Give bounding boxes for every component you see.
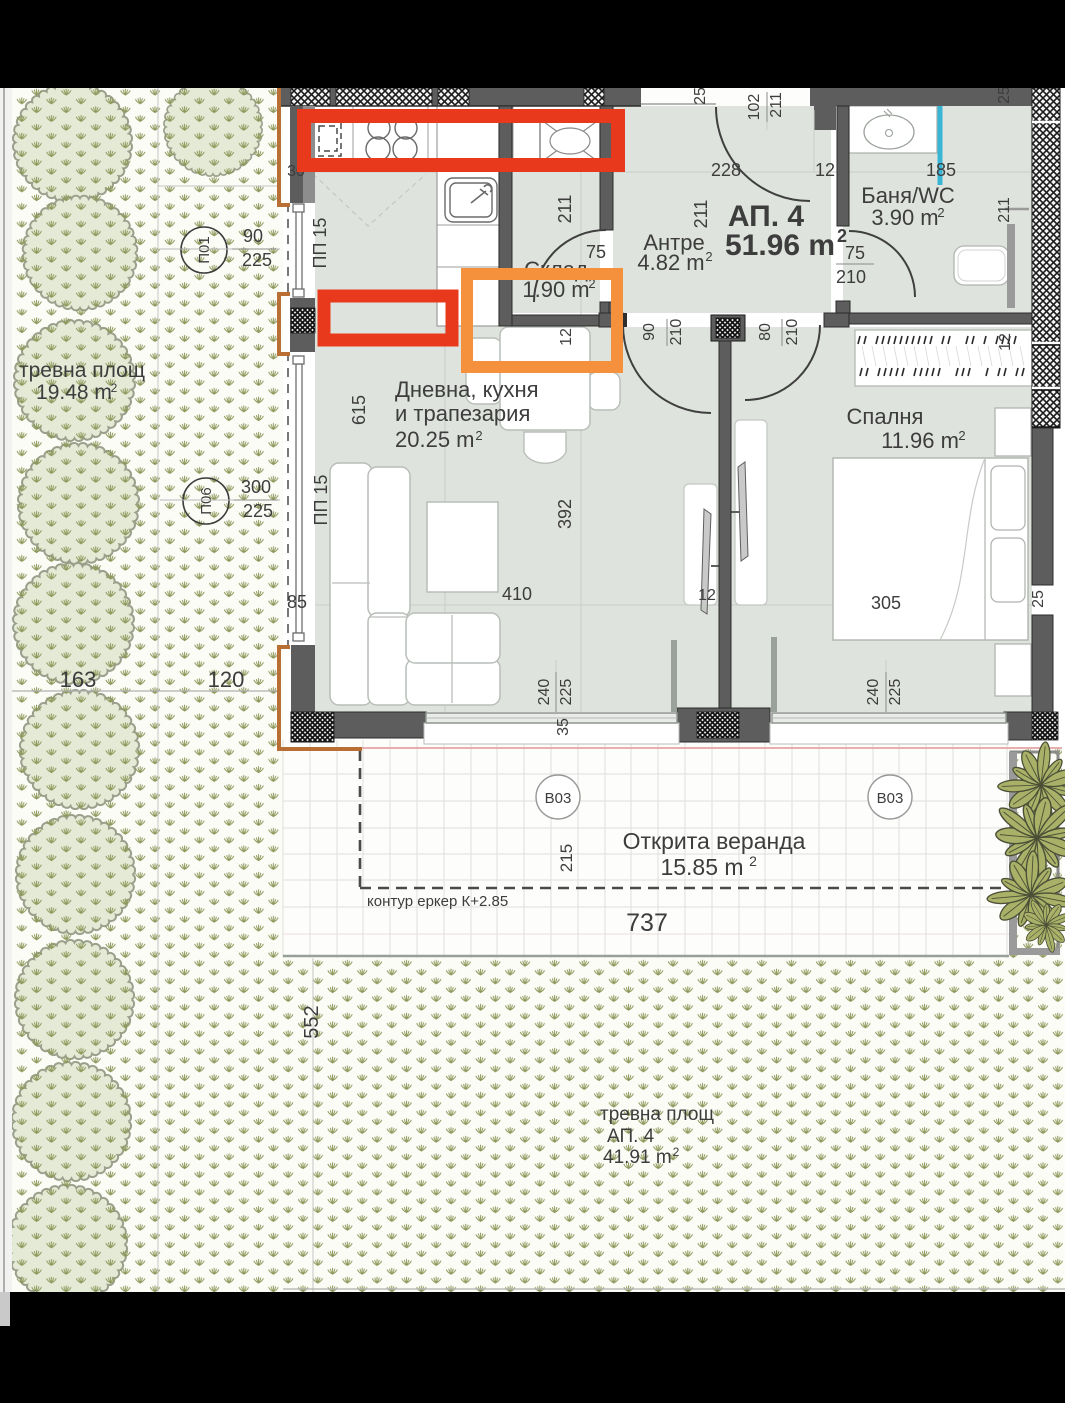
svg-text:2: 2 xyxy=(958,428,965,443)
svg-text:25: 25 xyxy=(692,87,709,105)
svg-text:240: 240 xyxy=(536,679,553,706)
svg-text:12: 12 xyxy=(558,328,575,346)
svg-text:19.48 m: 19.48 m xyxy=(36,381,112,404)
svg-text:11.96 m: 11.96 m xyxy=(881,428,959,453)
svg-text:211: 211 xyxy=(768,92,785,118)
svg-text:Открита веранда: Открита веранда xyxy=(623,828,806,854)
svg-text:2: 2 xyxy=(111,381,118,395)
svg-text:211: 211 xyxy=(691,200,711,229)
svg-text:и трапезария: и трапезария xyxy=(395,401,530,426)
svg-text:552: 552 xyxy=(301,1005,323,1038)
svg-text:75: 75 xyxy=(586,242,606,262)
svg-text:85: 85 xyxy=(287,592,307,612)
svg-text:225: 225 xyxy=(243,501,273,521)
svg-text:228: 228 xyxy=(711,160,741,180)
svg-text:25: 25 xyxy=(1030,590,1047,608)
svg-text:210: 210 xyxy=(784,319,801,346)
svg-text:211: 211 xyxy=(996,197,1013,223)
svg-text:120: 120 xyxy=(208,667,245,692)
svg-text:210: 210 xyxy=(836,267,866,287)
svg-text:392: 392 xyxy=(555,499,575,529)
svg-text:215: 215 xyxy=(557,844,576,872)
svg-text:2: 2 xyxy=(673,1145,680,1159)
svg-text:2: 2 xyxy=(705,249,712,264)
svg-text:410: 410 xyxy=(502,584,532,604)
svg-text:В03: В03 xyxy=(545,790,572,807)
svg-text:90: 90 xyxy=(243,226,263,246)
svg-text:2: 2 xyxy=(937,205,944,220)
svg-text:ПП 15: ПП 15 xyxy=(311,475,331,526)
svg-text:Спалня: Спалня xyxy=(847,404,924,429)
svg-text:ПП 15: ПП 15 xyxy=(310,218,330,269)
svg-text:4.82 m: 4.82 m xyxy=(637,250,704,275)
svg-text:П06: П06 xyxy=(198,487,215,514)
svg-text:240: 240 xyxy=(865,679,882,706)
svg-text:102: 102 xyxy=(746,94,763,121)
svg-text:41.91 m: 41.91 m xyxy=(603,1147,672,1168)
svg-text:12: 12 xyxy=(815,160,835,180)
svg-text:90: 90 xyxy=(641,323,658,341)
svg-text:3.90 m: 3.90 m xyxy=(871,205,938,230)
svg-text:163: 163 xyxy=(60,667,97,692)
svg-text:737: 737 xyxy=(626,909,668,937)
svg-text:контур еркер К+2.85: контур еркер К+2.85 xyxy=(367,893,508,910)
svg-text:225: 225 xyxy=(558,679,575,706)
svg-text:1.90 m: 1.90 m xyxy=(522,277,589,302)
svg-text:Дневна, кухня: Дневна, кухня xyxy=(395,377,539,402)
svg-text:225: 225 xyxy=(242,250,272,270)
svg-text:35: 35 xyxy=(555,718,572,736)
svg-text:20.25 m: 20.25 m xyxy=(395,427,475,452)
svg-text:211: 211 xyxy=(555,195,575,224)
svg-text:12: 12 xyxy=(698,587,716,604)
svg-text:185: 185 xyxy=(926,160,956,180)
svg-text:75: 75 xyxy=(845,243,865,263)
svg-text:51.96 m: 51.96 m xyxy=(725,229,835,262)
svg-text:15.85 m: 15.85 m xyxy=(660,854,743,880)
svg-text:АП. 4: АП. 4 xyxy=(607,1126,655,1147)
svg-text:615: 615 xyxy=(349,395,369,425)
svg-text:25: 25 xyxy=(996,86,1013,104)
svg-text:305: 305 xyxy=(871,593,901,613)
svg-text:2: 2 xyxy=(475,428,482,443)
svg-text:210: 210 xyxy=(668,319,685,346)
svg-text:В03: В03 xyxy=(877,790,904,807)
svg-text:80: 80 xyxy=(757,323,774,341)
svg-text:225: 225 xyxy=(887,679,904,706)
svg-text:П01: П01 xyxy=(196,236,213,263)
svg-text:300: 300 xyxy=(241,477,271,497)
svg-text:2: 2 xyxy=(749,853,757,869)
svg-text:12: 12 xyxy=(997,333,1014,351)
svg-text:тревна площ: тревна площ xyxy=(600,1104,714,1125)
svg-text:тревна площ: тревна площ xyxy=(19,359,145,382)
